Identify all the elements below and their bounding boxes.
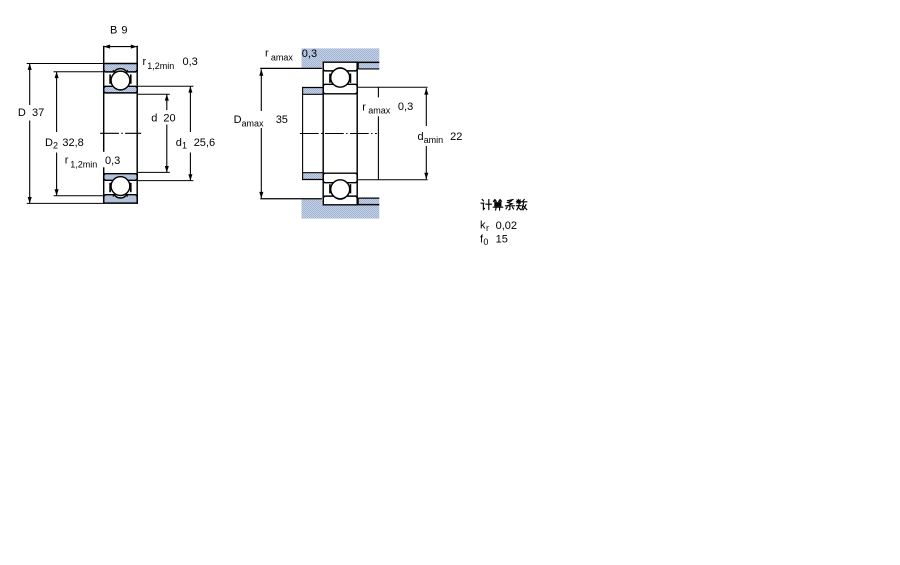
svg-text:d 20: d 20 (151, 112, 175, 124)
svg-text:amax: amax (271, 52, 294, 62)
svg-text:35: 35 (276, 114, 288, 126)
svg-text:1: 1 (182, 141, 187, 151)
svg-text:0,3: 0,3 (398, 101, 413, 113)
svg-text:25,6: 25,6 (194, 137, 215, 149)
svg-text:r: r (143, 56, 147, 68)
svg-text:r: r (486, 223, 489, 233)
svg-text:0,3: 0,3 (302, 48, 317, 60)
svg-text:1,2min: 1,2min (70, 159, 97, 169)
svg-text:amax: amax (368, 105, 391, 115)
svg-text:15: 15 (496, 234, 508, 246)
svg-text:D: D (234, 114, 242, 126)
svg-text:32,8: 32,8 (62, 137, 83, 149)
svg-text:d: d (176, 137, 182, 149)
svg-text:B: B (110, 25, 117, 37)
svg-text:0,3: 0,3 (183, 56, 198, 68)
svg-text:0: 0 (483, 237, 488, 247)
svg-text:r: r (362, 101, 366, 113)
svg-text:amax: amax (242, 119, 265, 129)
svg-text:22: 22 (450, 131, 462, 143)
svg-text:0,3: 0,3 (105, 155, 120, 167)
svg-text:1,2min: 1,2min (147, 61, 174, 71)
svg-text:r: r (65, 154, 69, 166)
svg-text:D: D (45, 137, 53, 149)
svg-text:D 37: D 37 (18, 107, 44, 119)
svg-text:2: 2 (53, 141, 58, 151)
svg-text:r: r (265, 47, 269, 59)
svg-text:amin: amin (424, 135, 444, 145)
svg-text:9: 9 (121, 25, 127, 37)
svg-text:0,02: 0,02 (496, 220, 517, 232)
